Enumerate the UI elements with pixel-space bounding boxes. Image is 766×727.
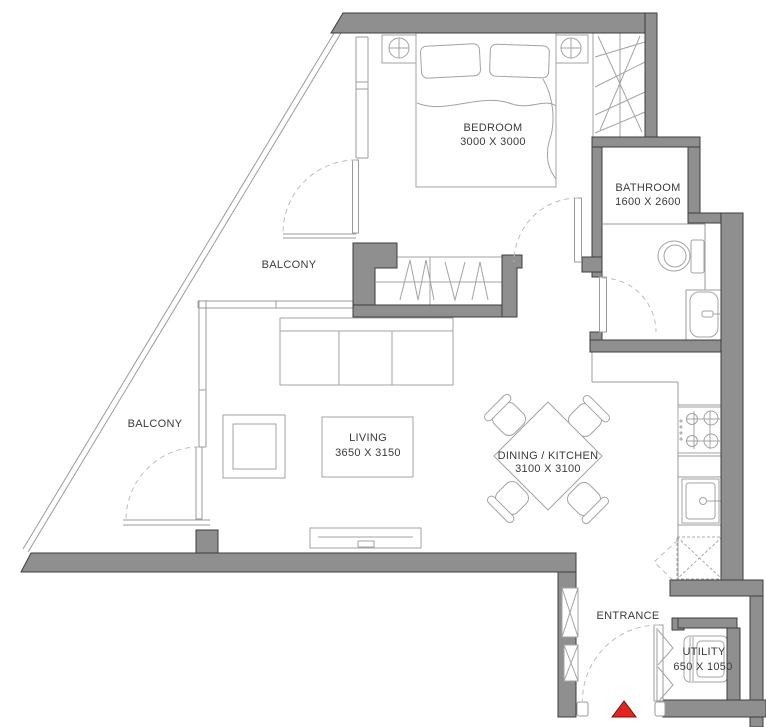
dishwasher-icon bbox=[654, 537, 722, 585]
entrance-door bbox=[583, 625, 664, 701]
bedroom-door bbox=[514, 198, 582, 262]
toilet-icon bbox=[658, 240, 704, 273]
bedroom-dims: 3000 X 3000 bbox=[460, 136, 526, 148]
door-stop bbox=[577, 702, 588, 716]
door-stop bbox=[655, 702, 665, 716]
bedroom-balcony-door bbox=[283, 160, 359, 238]
vanity-sink-icon bbox=[690, 292, 720, 337]
living-balcony-door bbox=[123, 447, 210, 525]
nightstand-left bbox=[382, 35, 416, 63]
dining-kitchen-label: DINING / KITCHEN bbox=[498, 450, 599, 462]
balcony-rail bbox=[23, 15, 350, 552]
pillow-icon bbox=[489, 44, 549, 78]
living-window-top bbox=[198, 301, 353, 308]
kitchen-counter bbox=[592, 352, 722, 580]
living-dims: 3650 X 3150 bbox=[335, 447, 401, 459]
stove-icon bbox=[678, 407, 722, 453]
utility-dims: 650 X 1050 bbox=[673, 661, 732, 673]
entrance-marker-icon bbox=[612, 701, 636, 717]
shaft-icon bbox=[562, 588, 578, 681]
entrance-label: ENTRANCE bbox=[597, 610, 660, 622]
utility-label: UTILITY bbox=[682, 646, 725, 658]
wardrobe-icon bbox=[593, 33, 647, 137]
bathroom-fixtures bbox=[603, 224, 721, 340]
washing-machine-icon bbox=[684, 636, 728, 682]
dining-kitchen-dims: 3100 X 3100 bbox=[515, 463, 581, 475]
balcony-upper-label: BALCONY bbox=[262, 259, 317, 271]
sofa-icon bbox=[280, 318, 453, 385]
bed-icon bbox=[416, 33, 556, 187]
floor-plan: BEDROOM 3000 X 3000 BATHROOM 1600 X 2600… bbox=[0, 0, 766, 727]
bathroom-label: BATHROOM bbox=[615, 182, 680, 194]
nightstand-right bbox=[556, 35, 588, 63]
bedroom-label: BEDROOM bbox=[464, 122, 523, 134]
bathroom-dims: 1600 X 2600 bbox=[615, 196, 681, 208]
armchair-icon bbox=[223, 415, 285, 478]
balcony-lower-label: BALCONY bbox=[128, 418, 183, 430]
living-label: LIVING bbox=[349, 432, 387, 444]
kitchen-sink-icon bbox=[682, 479, 721, 523]
living-window-west bbox=[199, 300, 206, 447]
bedroom-window bbox=[356, 37, 368, 158]
pillow-icon bbox=[420, 43, 481, 78]
bathroom-door bbox=[600, 277, 657, 332]
tv-console-icon bbox=[310, 528, 421, 548]
